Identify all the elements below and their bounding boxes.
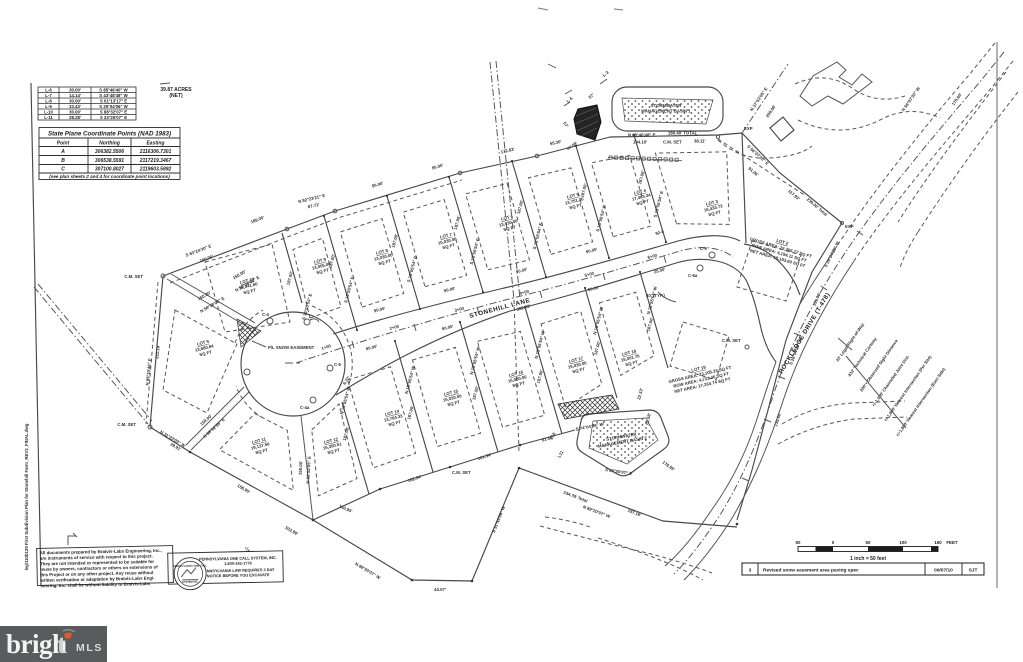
svg-text:S 88°32'07" E: S 88°32'07" E	[100, 110, 127, 115]
svg-text:306538.5591: 306538.5591	[95, 158, 124, 164]
svg-text:C-5: C-5	[334, 362, 342, 367]
svg-text:Revised snow easement area pav: Revised snow easement area paving spec	[763, 568, 859, 574]
svg-text:FEET: FEET	[946, 540, 958, 545]
svg-text:C.M. SET: C.M. SET	[663, 140, 682, 145]
svg-text:Point: Point	[57, 141, 70, 147]
svg-text:(see plan sheets 2 and 4 for c: (see plan sheets 2 and 4 for coordinate …	[49, 174, 170, 179]
svg-text:09/07/10: 09/07/10	[934, 568, 953, 574]
svg-text:L-8: L-8	[45, 99, 52, 104]
svg-text:30.00': 30.00'	[69, 99, 81, 104]
svg-text:L-6: L-6	[45, 88, 52, 93]
svg-text:L-9: L-9	[45, 104, 52, 109]
svg-text:S 01°13'17" E: S 01°13'17" E	[100, 99, 127, 104]
svg-text:PENNSYLVANIA ONE CALL: PENNSYLVANIA ONE CALL	[173, 563, 207, 568]
svg-text:1-800-242-1776: 1-800-242-1776	[224, 560, 253, 566]
svg-text:S 33°26'07" E: S 33°26'07" E	[100, 115, 127, 120]
svg-text:150: 150	[934, 540, 942, 545]
svg-text:S 85°46'40" W: S 85°46'40" W	[99, 88, 128, 93]
svg-text:N 68°46'48" E: N 68°46'48" E	[628, 133, 656, 138]
svg-text:30.00': 30.00'	[69, 88, 81, 93]
svg-text:P/L SNOW EASEMENT: P/L SNOW EASEMENT	[268, 345, 315, 350]
svg-text:State Plane Coordinate Points: State Plane Coordinate Points (NAD 1983)	[48, 131, 171, 138]
svg-text:3: 3	[749, 568, 752, 574]
svg-text:STORMWATER: STORMWATER	[651, 103, 683, 108]
svg-text:100: 100	[899, 540, 907, 545]
svg-text:307100.8027: 307100.8027	[95, 167, 124, 173]
svg-text:1 inch = 50 feet: 1 inch = 50 feet	[850, 556, 886, 562]
svg-text:A: A	[60, 149, 65, 155]
svg-text:C-6a: C-6a	[688, 273, 698, 278]
svg-text:14.14': 14.14'	[69, 93, 81, 98]
svg-text:EXP: EXP	[744, 126, 753, 131]
svg-text:38.11': 38.11'	[694, 139, 706, 144]
svg-text:33.43': 33.43'	[69, 104, 81, 109]
svg-text:MANAGEMENT BASIN 1: MANAGEMENT BASIN 1	[641, 109, 691, 114]
svg-text:2117219.3467: 2117219.3467	[139, 158, 172, 164]
svg-text:Northing: Northing	[99, 141, 120, 147]
svg-text:C-6: C-6	[700, 246, 708, 251]
svg-text:306382.5506: 306382.5506	[95, 149, 124, 155]
svg-text:C-4a: C-4a	[300, 405, 310, 410]
svg-text:C.M. SET: C.M. SET	[722, 338, 741, 343]
svg-text:C.M. SET: C.M. SET	[124, 274, 143, 279]
svg-text:S 43°48'48" W: S 43°48'48" W	[99, 93, 128, 98]
svg-text:50: 50	[866, 540, 871, 545]
svg-text:SYSTEM INC.: SYSTEM INC.	[182, 580, 199, 584]
svg-text:50: 50	[796, 540, 801, 545]
svg-text:L-11: L-11	[44, 115, 53, 120]
svg-text:L-7: L-7	[45, 93, 52, 98]
svg-text:2116306.7301: 2116306.7301	[139, 149, 172, 155]
svg-text:EXP: EXP	[845, 224, 854, 229]
svg-text:2119603.5892: 2119603.5892	[139, 167, 172, 173]
svg-text:B: B	[61, 158, 65, 164]
svg-text:C: C	[61, 167, 65, 173]
svg-text:MLS: MLS	[76, 642, 103, 654]
svg-text:t: t	[57, 629, 66, 659]
svg-text:Easting: Easting	[146, 141, 164, 147]
svg-text:43.07': 43.07'	[434, 587, 446, 592]
svg-text:SJT: SJT	[969, 568, 978, 574]
svg-text:S 29°04'06" W: S 29°04'06" W	[99, 104, 128, 109]
svg-text:150.00': 150.00'	[298, 461, 304, 475]
svg-text:28.28': 28.28'	[69, 115, 81, 120]
svg-text:C.M. SET: C.M. SET	[117, 422, 136, 427]
svg-text:C.M. SET: C.M. SET	[452, 470, 471, 475]
svg-text:C-4: C-4	[262, 312, 270, 317]
svg-text:30.00': 30.00'	[69, 110, 81, 115]
svg-text:L-10: L-10	[44, 110, 53, 115]
svg-text:leg\110b139 First Subdivision: leg\110b139 First Subdivision Plan for S…	[24, 423, 29, 570]
svg-text:(NET): (NET)	[169, 93, 183, 99]
